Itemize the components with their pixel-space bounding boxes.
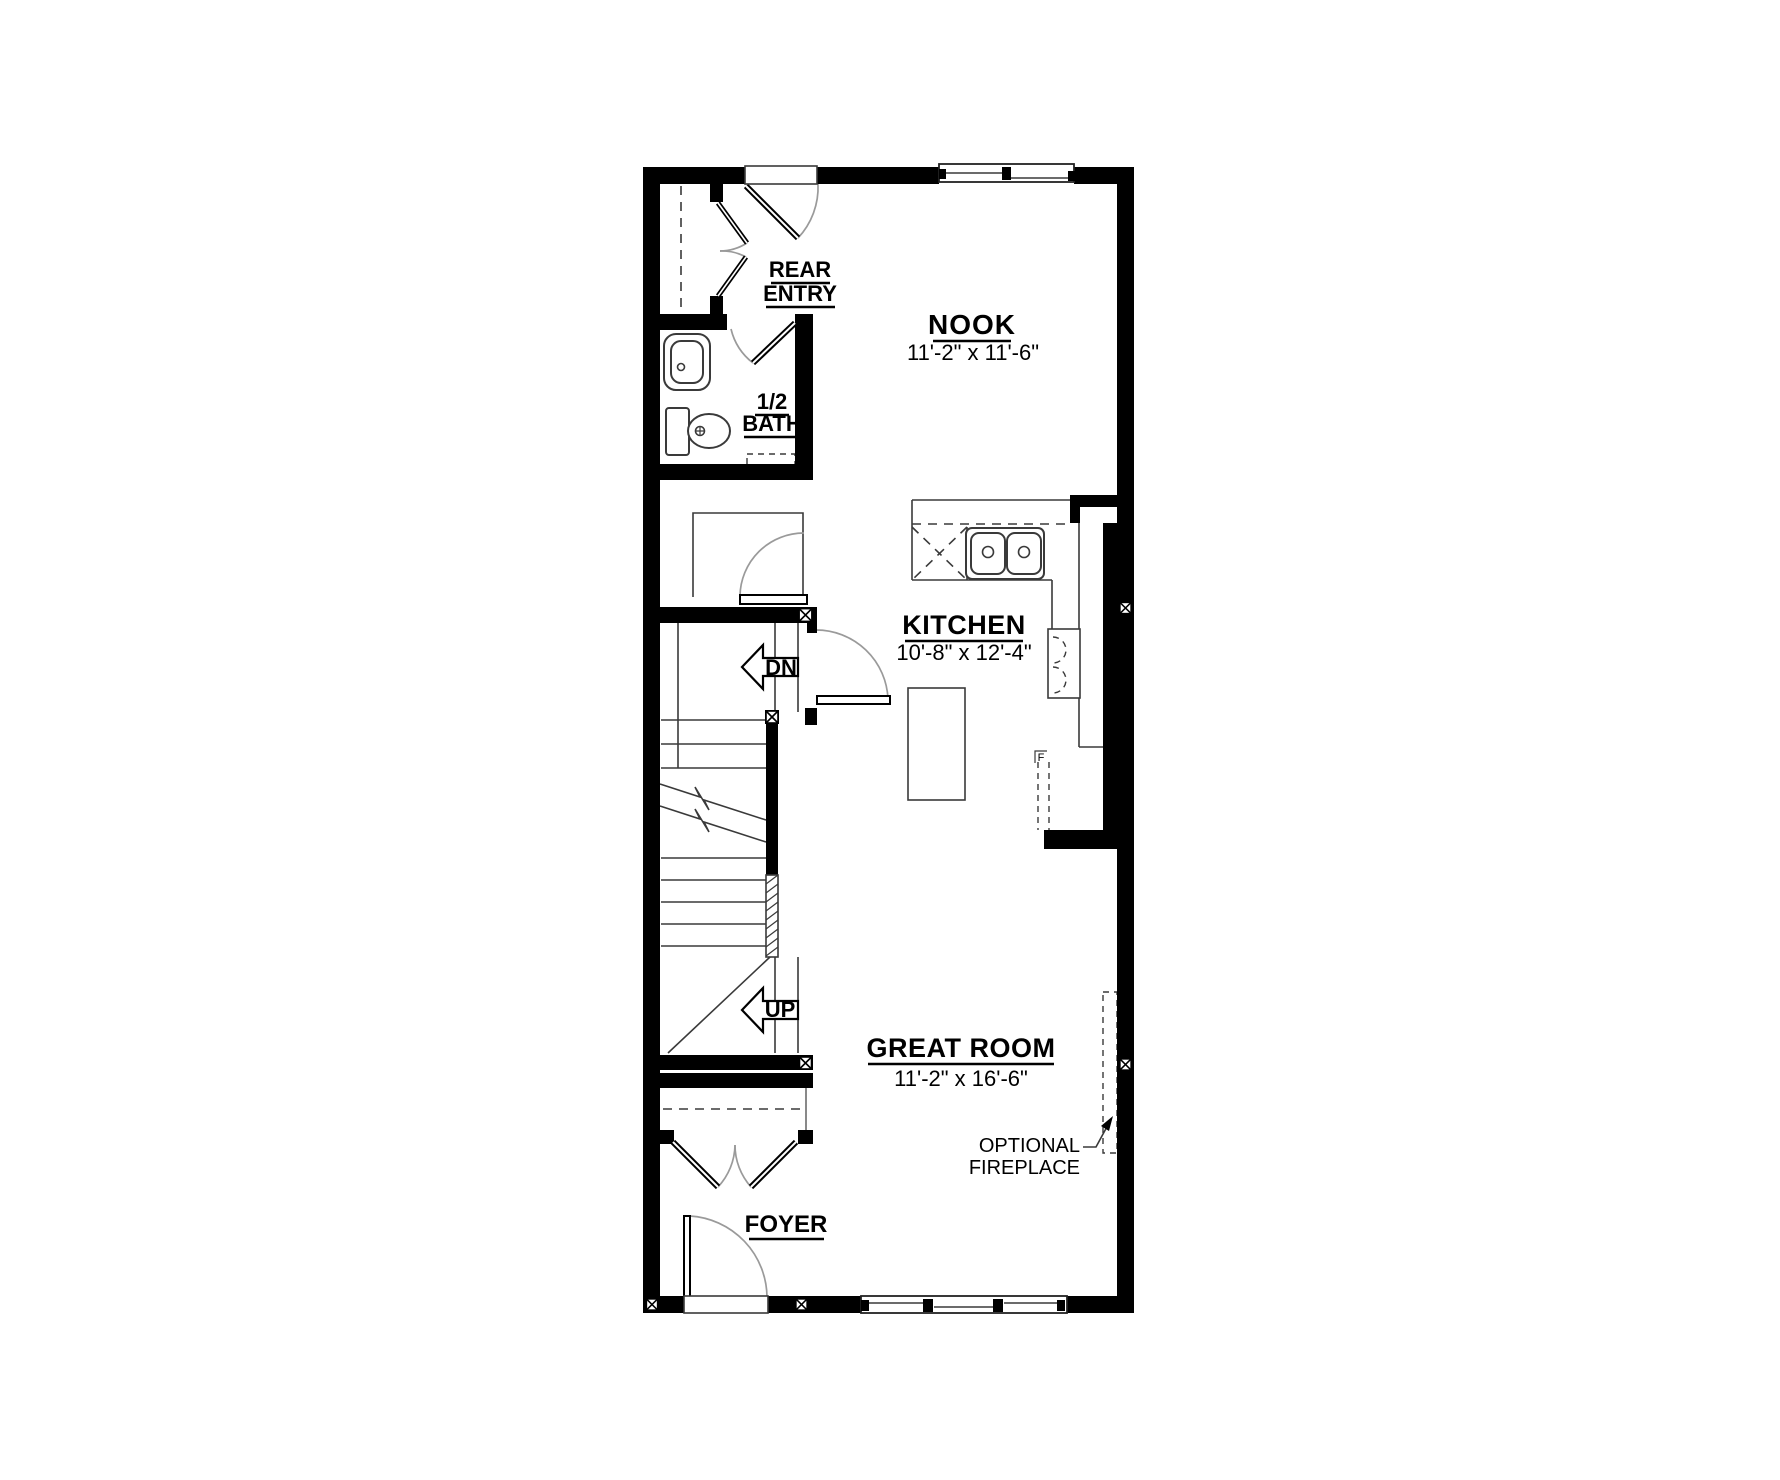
kitchen-door-swing: [816, 630, 888, 699]
nook-dims: 11'-2" x 11'-6": [907, 340, 1039, 365]
corner-cabinet-x: [912, 527, 967, 580]
rear-closet-upper-swing: [720, 243, 747, 251]
foyer-closet-post-right: [798, 1130, 813, 1144]
f-marker: F: [1038, 752, 1045, 764]
range-appliance: [1048, 629, 1080, 698]
nook-window: [939, 164, 1075, 182]
post-bottom-left: [646, 1299, 657, 1310]
kitchen-label: KITCHEN: [902, 610, 1026, 640]
foyer-closet-right-swing: [735, 1145, 751, 1187]
flue-dashed-lines: [1038, 762, 1049, 830]
stair-treads: [661, 720, 766, 946]
optional-fireplace: [1083, 992, 1117, 1153]
great-room-dims: 11'-2" x 16'-6": [894, 1066, 1028, 1091]
floor-plan-page: REAR ENTRY 1/2 BATH NOOK 11'-2" x 11'-6"…: [0, 0, 1780, 1480]
post-stair-rail: [766, 711, 778, 723]
kitchen-door-jamb-upper: [807, 623, 817, 633]
hall-closet: [693, 513, 803, 597]
foyer-closet-post-left: [660, 1130, 674, 1144]
post-right-wall-lower: [1120, 1059, 1131, 1070]
kitchen-jog-notch: [1080, 507, 1117, 523]
toilet-tank: [666, 408, 689, 455]
bath-door-swing: [731, 329, 753, 363]
vanity-bowl: [671, 341, 703, 383]
kitchen-sink: [966, 528, 1044, 579]
post-front-door: [796, 1299, 807, 1310]
rear-entry-label-1: REAR: [769, 257, 831, 282]
foyer-label: FOYER: [745, 1211, 828, 1238]
kitchen-dims: 10'-8" x 12'-4": [896, 640, 1031, 665]
post-right-wall-upper: [1120, 602, 1131, 613]
stair-rail-wall: [766, 712, 778, 875]
bath-door: [753, 323, 795, 363]
post-markers: [646, 602, 1131, 1310]
stair-hatched-rail: [766, 875, 778, 957]
hall-closet-door-swing: [740, 533, 804, 596]
wall-bottom-right: [1067, 1296, 1134, 1313]
wall-right: [1117, 167, 1134, 1313]
kitchen-door-jamb-lower: [805, 708, 817, 725]
great-room-label: GREAT ROOM: [867, 1033, 1056, 1063]
wall-kitchen-stub: [1044, 830, 1134, 849]
up-label: UP: [765, 997, 796, 1022]
rear-door-sill: [745, 166, 817, 184]
kitchen-island: [908, 688, 965, 800]
foyer-closet-left-swing: [718, 1145, 735, 1187]
dn-label: DN: [765, 655, 797, 680]
wall-foyer-closet-b: [660, 1073, 813, 1088]
rear-closet-lower-swing: [720, 251, 746, 257]
rear-closet-post-bottom: [710, 296, 723, 314]
labels: REAR ENTRY 1/2 BATH NOOK 11'-2" x 11'-6"…: [742, 257, 1080, 1239]
wall-bottom-mid: [767, 1296, 861, 1313]
wall-left: [643, 167, 660, 1313]
door-swings: [690, 184, 888, 1297]
rear-entry-door-swing: [798, 184, 818, 238]
hall-closet-door: [740, 595, 807, 604]
front-door: [684, 1216, 690, 1298]
half-bath-label-2: BATH: [742, 411, 801, 436]
wall-right-chase: [1103, 523, 1117, 830]
toilet-bowl: [688, 414, 730, 448]
wall-foyer-closet-a: [660, 1055, 813, 1070]
sink-basin-left: [971, 533, 1005, 574]
stair-break-lines: [660, 784, 766, 842]
post-hall-wall: [799, 608, 812, 621]
wall-nook-bath: [795, 314, 813, 480]
floor-plan-drawing: REAR ENTRY 1/2 BATH NOOK 11'-2" x 11'-6"…: [0, 0, 1780, 1480]
front-door-sill: [684, 1296, 768, 1313]
rear-entry-label-2: ENTRY: [763, 281, 837, 306]
post-foyer-closet: [799, 1057, 811, 1069]
stair-edge-lines: [678, 623, 798, 1053]
great-room-window: [861, 1296, 1067, 1313]
range-burners: [1053, 637, 1066, 693]
wall-hall: [660, 607, 817, 623]
wall-top-mid: [817, 167, 939, 184]
wall-bath-top: [660, 314, 727, 330]
sink-basin-right: [1007, 533, 1041, 574]
hall-closet-outline: [693, 513, 803, 597]
optional-fireplace-label-2: FIREPLACE: [969, 1157, 1080, 1179]
rear-entry-door: [746, 186, 798, 238]
rear-closet-post-top: [710, 184, 723, 202]
wall-bath-bottom: [660, 464, 813, 480]
nook-label: NOOK: [928, 309, 1016, 340]
kitchen-door: [817, 696, 890, 704]
optional-fireplace-label-1: OPTIONAL: [979, 1135, 1080, 1157]
